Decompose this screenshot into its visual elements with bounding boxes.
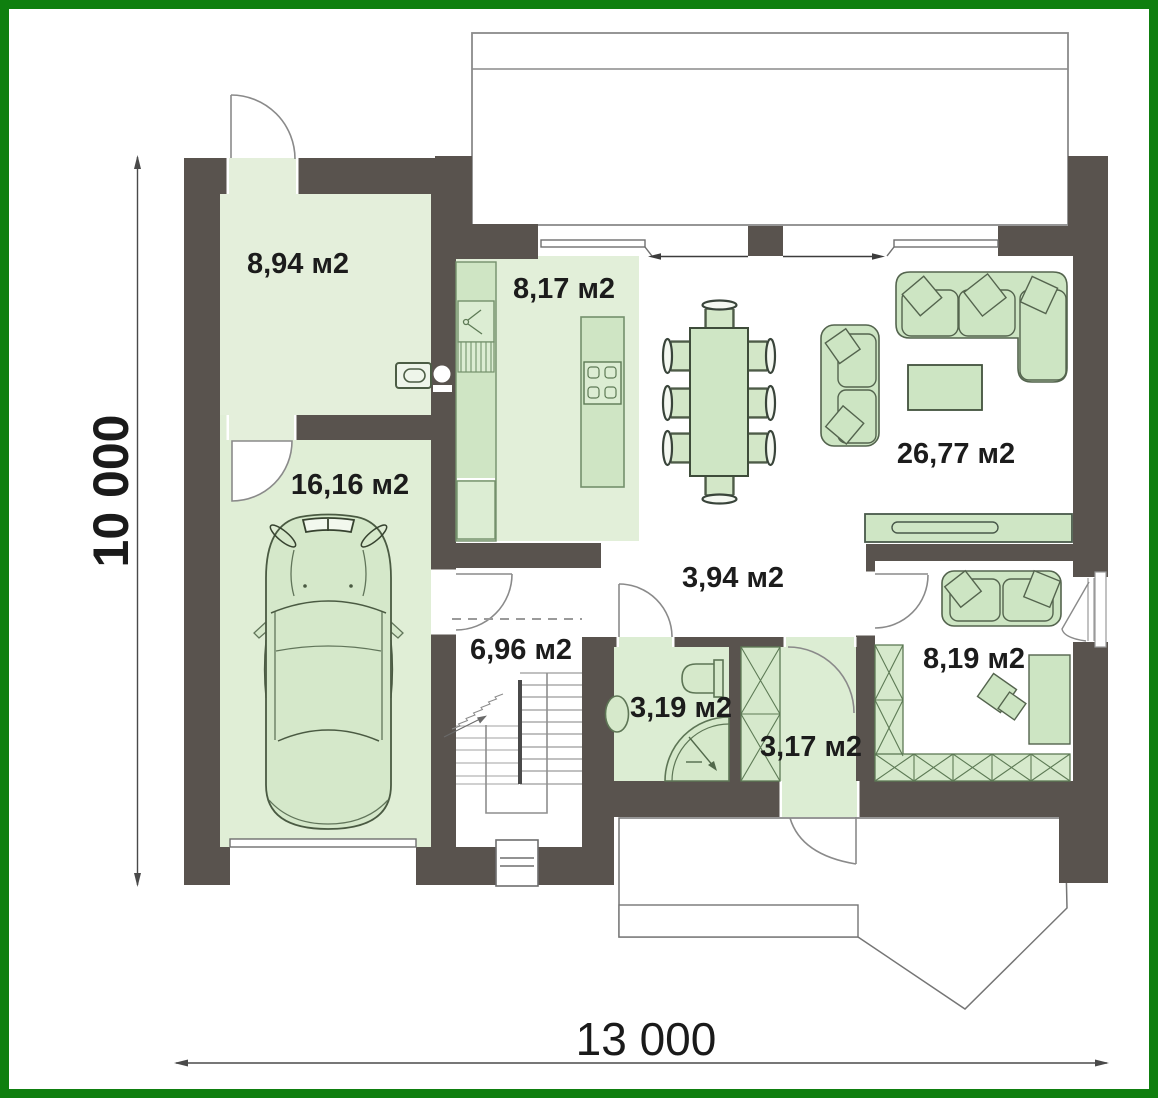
svg-text:3,19 м2: 3,19 м2 bbox=[630, 692, 732, 724]
svg-text:8,19 м2: 8,19 м2 bbox=[923, 643, 1025, 675]
svg-text:26,77 м2: 26,77 м2 bbox=[897, 438, 1015, 470]
svg-text:16,16 м2: 16,16 м2 bbox=[291, 469, 409, 501]
svg-text:3,94 м2: 3,94 м2 bbox=[682, 562, 784, 594]
svg-text:10 000: 10 000 bbox=[83, 415, 139, 568]
svg-text:6,96 м2: 6,96 м2 bbox=[470, 634, 572, 666]
svg-text:8,94 м2: 8,94 м2 bbox=[247, 248, 349, 280]
svg-text:8,17 м2: 8,17 м2 bbox=[513, 273, 615, 305]
svg-text:3,17 м2: 3,17 м2 bbox=[760, 731, 862, 763]
svg-text:13 000: 13 000 bbox=[576, 1013, 717, 1065]
